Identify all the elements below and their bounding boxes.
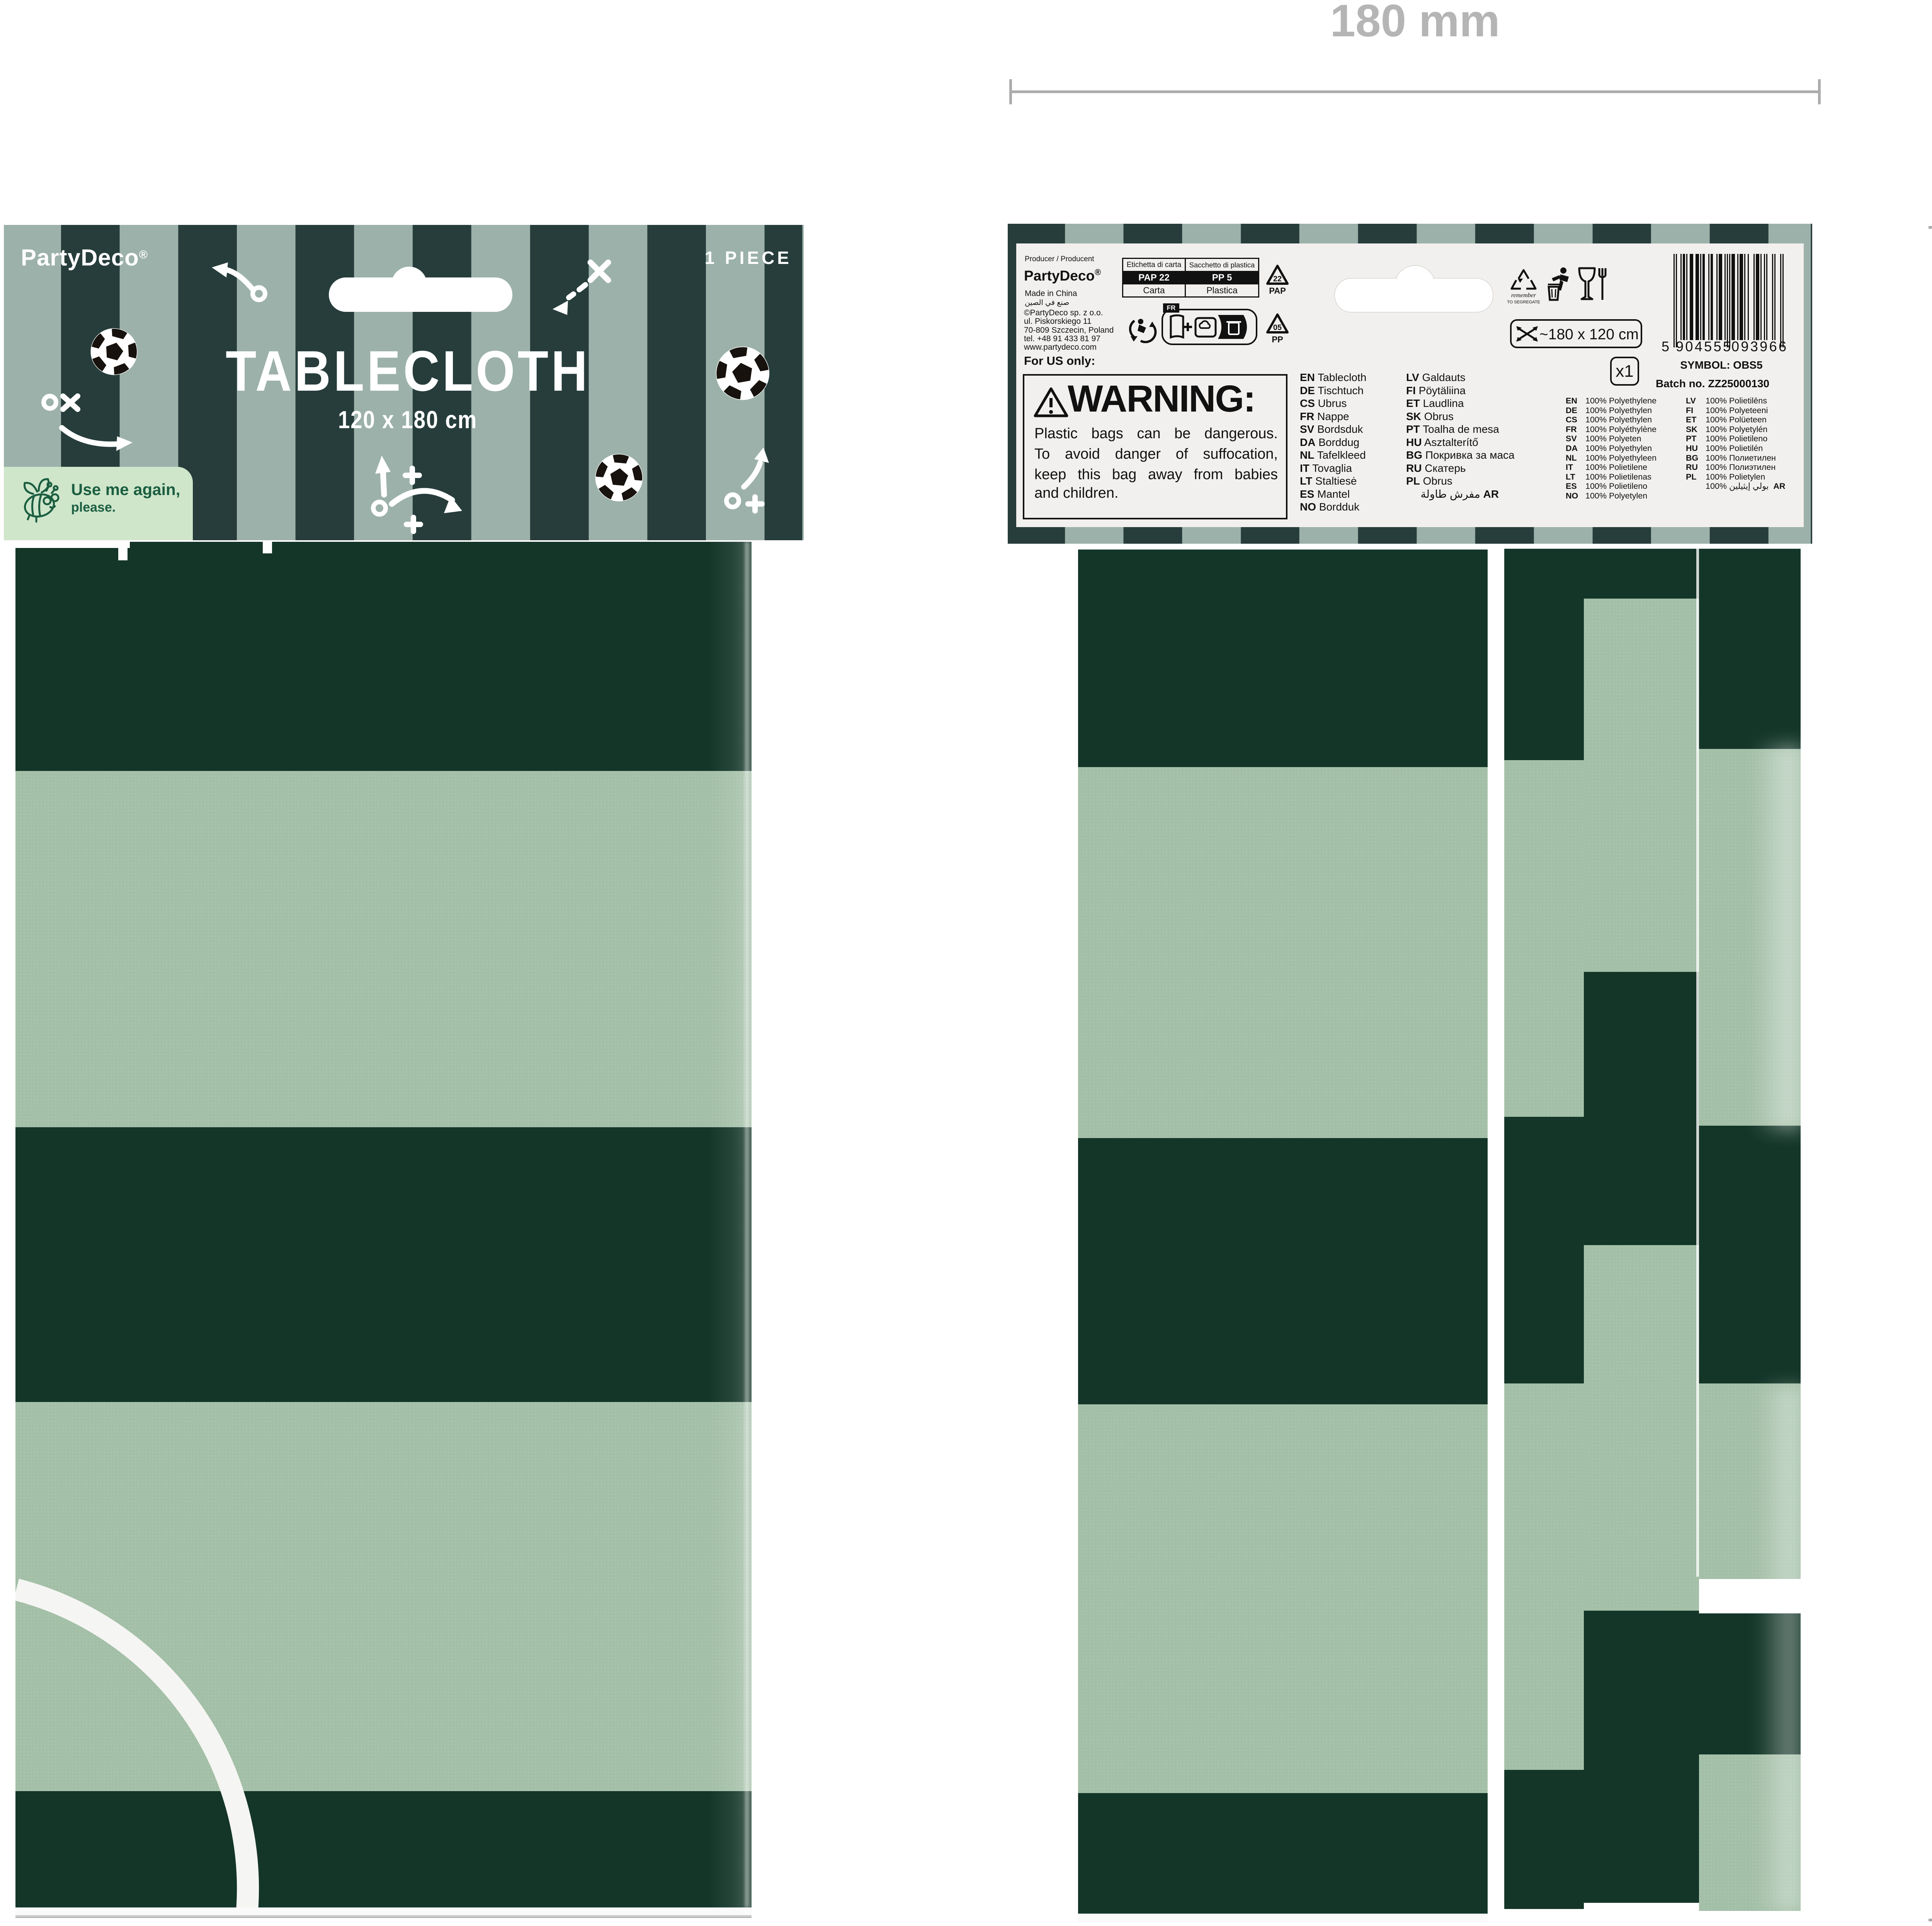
svg-text:093966: 093966 (1731, 339, 1786, 354)
svg-text:5: 5 (1662, 339, 1669, 354)
svg-text:904555: 904555 (1676, 339, 1731, 354)
svg-text:05: 05 (1273, 323, 1282, 332)
svg-text:TO SEGREGATE: TO SEGREGATE (1507, 300, 1540, 305)
svg-text:PAP: PAP (1269, 286, 1286, 296)
svg-text:22: 22 (1273, 275, 1282, 283)
svg-text:PP: PP (1272, 335, 1283, 344)
svg-text:remember: remember (1511, 292, 1536, 299)
